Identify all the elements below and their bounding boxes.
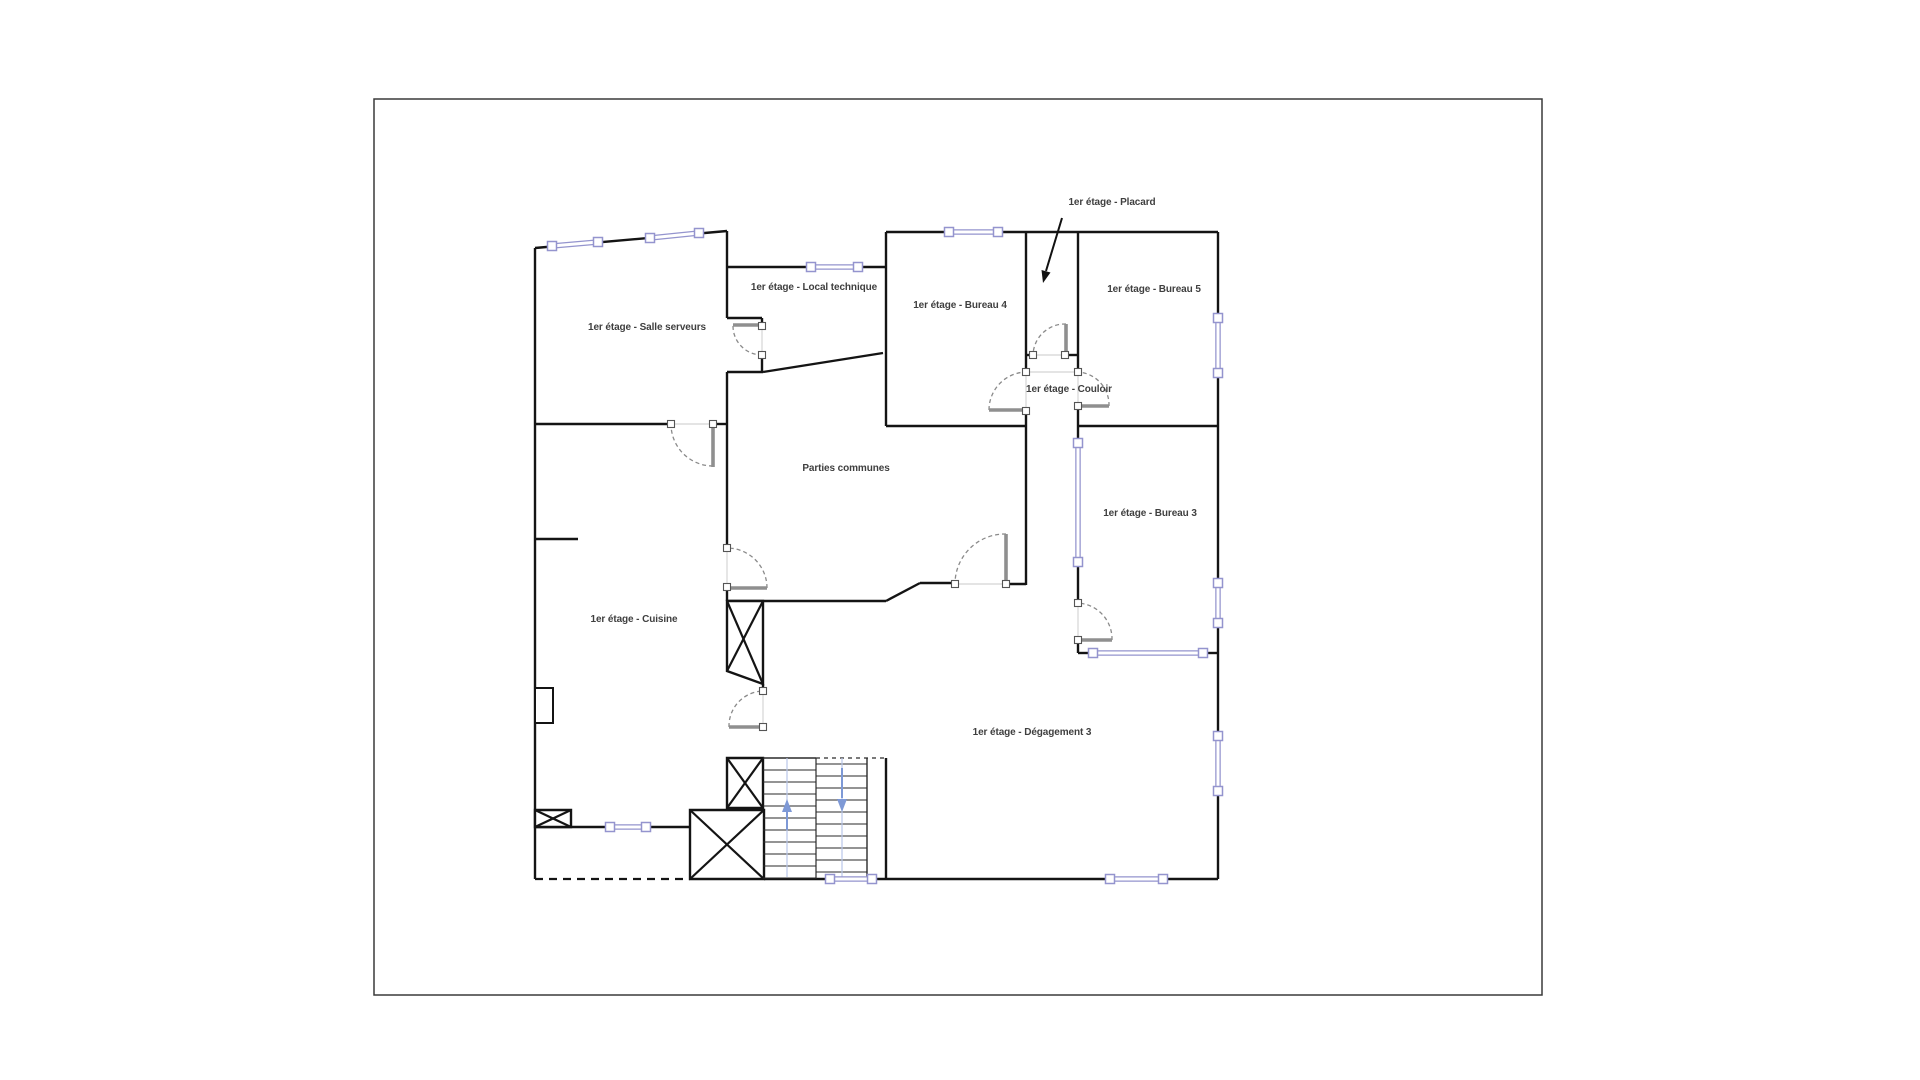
w-cuisine-handle[interactable]	[606, 823, 615, 832]
door-parties-sud-arc[interactable]	[955, 534, 1006, 584]
door-placard-jamb	[1062, 352, 1069, 359]
w-salle-1-glass	[552, 242, 598, 246]
w-right-3-handle[interactable]	[1214, 732, 1223, 741]
door-bureau-4-jamb	[1023, 408, 1030, 415]
w-right-1-handle[interactable]	[1214, 369, 1223, 378]
door-parties-ouest-jamb	[724, 584, 731, 591]
w-bottom-1-handle[interactable]	[826, 875, 835, 884]
w-salle-2-handle[interactable]	[695, 229, 704, 238]
room-label-degagement-3[interactable]: 1er étage - Dégagement 3	[973, 727, 1092, 738]
w-local-handle[interactable]	[854, 263, 863, 272]
door-bureau-4-arc[interactable]	[989, 372, 1026, 410]
room-label-bureau-4[interactable]: 1er étage - Bureau 4	[913, 300, 1007, 311]
placard-mural	[535, 688, 553, 723]
door-cuisine-haut-jamb	[668, 421, 675, 428]
w-bureau3-b-handle[interactable]	[1089, 649, 1098, 658]
w-right-3-handle[interactable]	[1214, 787, 1223, 796]
wall	[763, 353, 883, 372]
floor-plan-canvas[interactable]: 1er étage - Salle serveurs1er étage - Lo…	[0, 0, 1920, 1080]
w-bureau3-b-handle[interactable]	[1199, 649, 1208, 658]
room-label-local-technique[interactable]: 1er étage - Local technique	[751, 282, 878, 293]
door-salle-serveurs-jamb	[759, 352, 766, 359]
door-cuisine-haut-jamb	[710, 421, 717, 428]
w-salle-2-handle[interactable]	[646, 234, 655, 243]
w-right-1-handle[interactable]	[1214, 314, 1223, 323]
room-label-parties-communes[interactable]: Parties communes	[802, 463, 890, 474]
door-parties-sud-jamb	[952, 581, 959, 588]
room-label-bureau-5[interactable]: 1er étage - Bureau 5	[1107, 284, 1201, 295]
room-label-salle-serveurs[interactable]: 1er étage - Salle serveurs	[588, 322, 707, 333]
room-label-cuisine[interactable]: 1er étage - Cuisine	[590, 614, 678, 625]
w-local-handle[interactable]	[807, 263, 816, 272]
door-parties-ouest-jamb	[724, 545, 731, 552]
door-salle-serveurs-jamb	[759, 323, 766, 330]
room-label-bureau-3[interactable]: 1er étage - Bureau 3	[1103, 508, 1197, 519]
w-bottom-1-handle[interactable]	[868, 875, 877, 884]
w-bureau3-l-handle[interactable]	[1074, 558, 1083, 567]
floor-plan-page: 1er étage - Salle serveurs1er étage - Lo…	[0, 0, 1920, 1080]
w-bottom-2-handle[interactable]	[1159, 875, 1168, 884]
door-parties-sud-jamb	[1003, 581, 1010, 588]
w-bureau4-handle[interactable]	[945, 228, 954, 237]
w-right-2-handle[interactable]	[1214, 579, 1223, 588]
door-escalier-jamb	[760, 688, 767, 695]
door-bureau-5-jamb	[1075, 369, 1082, 376]
door-escalier-jamb	[760, 724, 767, 731]
door-bureau-3-jamb	[1075, 600, 1082, 607]
annotation-label[interactable]: 1er étage - Placard	[1068, 197, 1155, 208]
w-bottom-2-handle[interactable]	[1106, 875, 1115, 884]
door-bureau-3-arc[interactable]	[1078, 603, 1112, 640]
stair-down-arrow-head	[837, 799, 847, 812]
w-bureau3-l-handle[interactable]	[1074, 439, 1083, 448]
door-placard-jamb	[1030, 352, 1037, 359]
door-salle-serveurs-arc[interactable]	[733, 326, 762, 355]
door-placard-arc[interactable]	[1033, 324, 1066, 355]
wall	[886, 583, 920, 601]
room-label-couloir[interactable]: 1er étage - Couloir	[1026, 384, 1112, 395]
w-bureau4-handle[interactable]	[994, 228, 1003, 237]
w-right-2-handle[interactable]	[1214, 619, 1223, 628]
door-bureau-4-jamb	[1023, 369, 1030, 376]
door-escalier-arc[interactable]	[729, 691, 763, 727]
door-bureau-3-jamb	[1075, 637, 1082, 644]
door-parties-ouest-arc[interactable]	[727, 548, 767, 588]
w-salle-1-handle[interactable]	[548, 242, 557, 251]
w-salle-1-handle[interactable]	[594, 238, 603, 247]
w-cuisine-handle[interactable]	[642, 823, 651, 832]
door-bureau-5-jamb	[1075, 403, 1082, 410]
annotation-arrow	[1046, 218, 1062, 271]
annotation-arrow-head	[1042, 270, 1051, 283]
door-cuisine-haut-arc[interactable]	[671, 424, 713, 466]
